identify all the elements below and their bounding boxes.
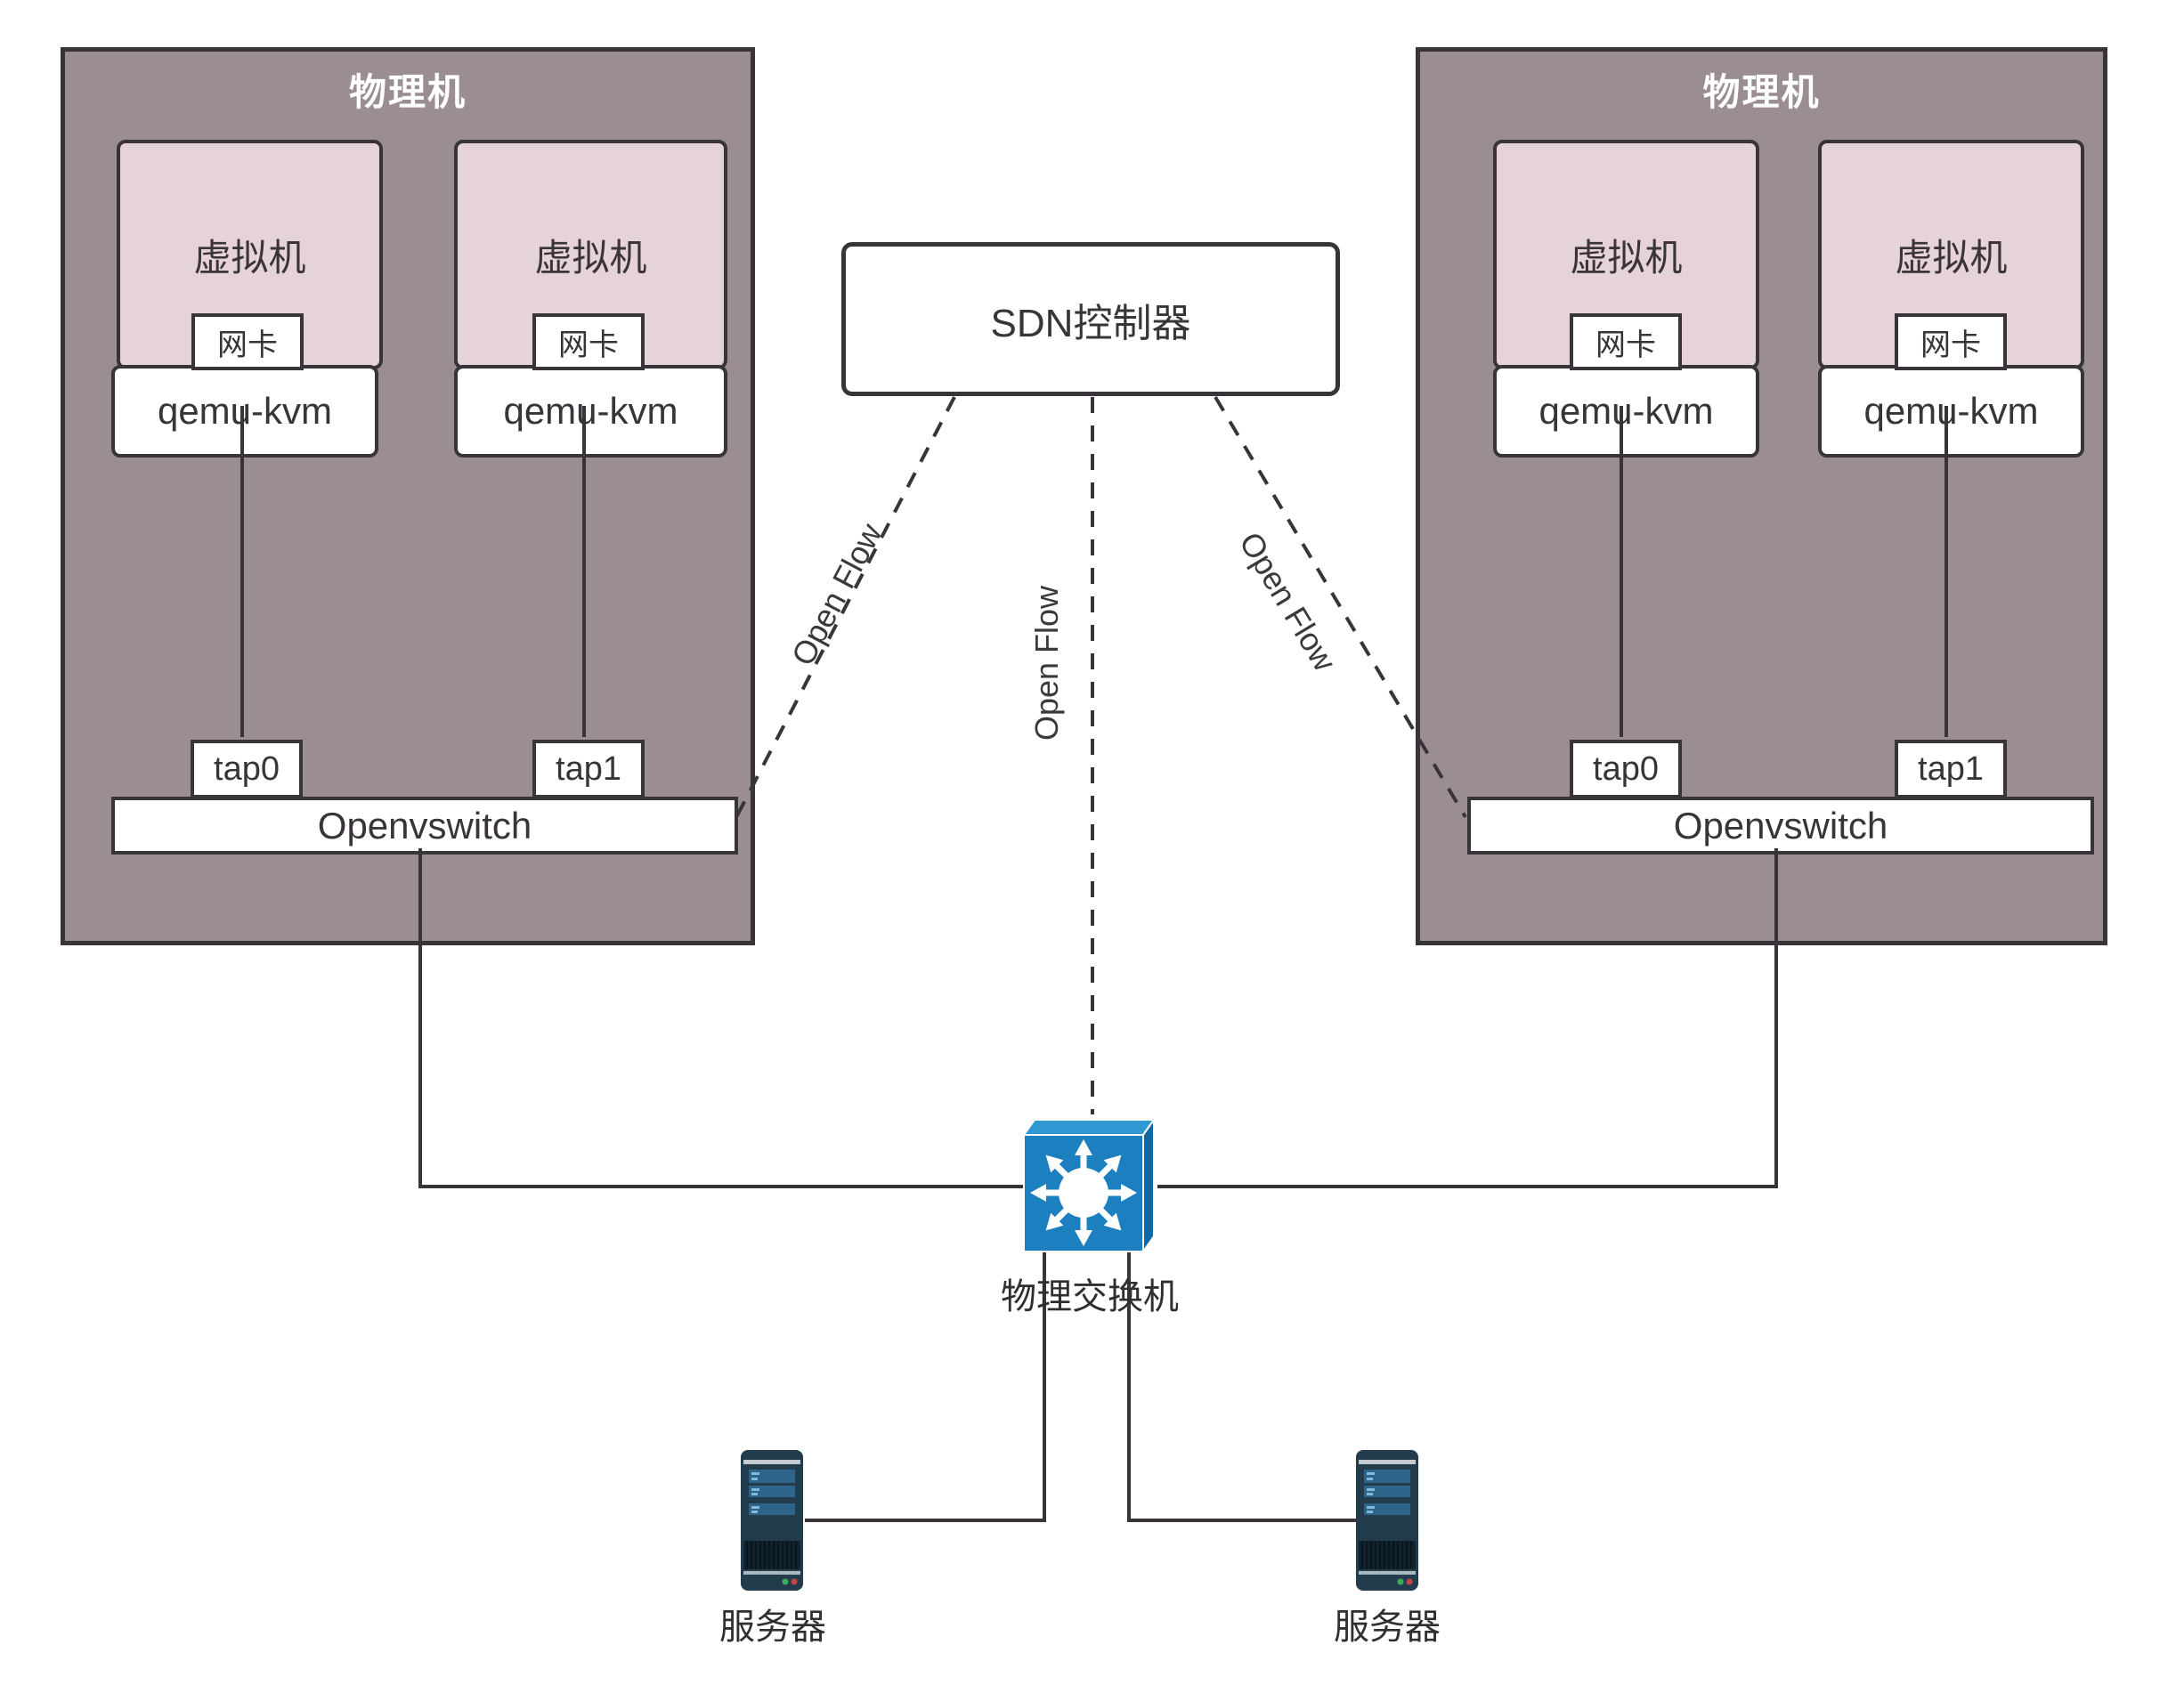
diagram-canvas: 物理机 虚拟机 虚拟机 qemu-kvm qemu-kvm 网卡 网卡 Open… [0,0,2184,1685]
server-led-green [1398,1579,1404,1585]
openflow-link-left [735,397,954,819]
physical-switch-label: 物理交换机 [947,1268,1232,1319]
switch-top-face [1024,1120,1154,1135]
wire-left-ovs-switch [420,848,1026,1187]
openflow-link-right [1215,397,1465,817]
server-2-label: 服务器 [1245,1598,1530,1649]
sdn-controller: SDN控制器 [841,242,1340,396]
physical-switch-icon [1004,1113,1160,1264]
server-icon-1 [740,1449,804,1592]
server-1-label: 服务器 [630,1598,915,1649]
server-led-green [783,1579,789,1585]
wire-right-ovs-switch [1157,848,1776,1187]
sdn-controller-label: SDN控制器 [991,291,1191,348]
server-icon-2 [1355,1449,1419,1592]
switch-side-face [1143,1120,1154,1252]
server-led-red [1407,1579,1413,1585]
server-led-red [792,1579,798,1585]
